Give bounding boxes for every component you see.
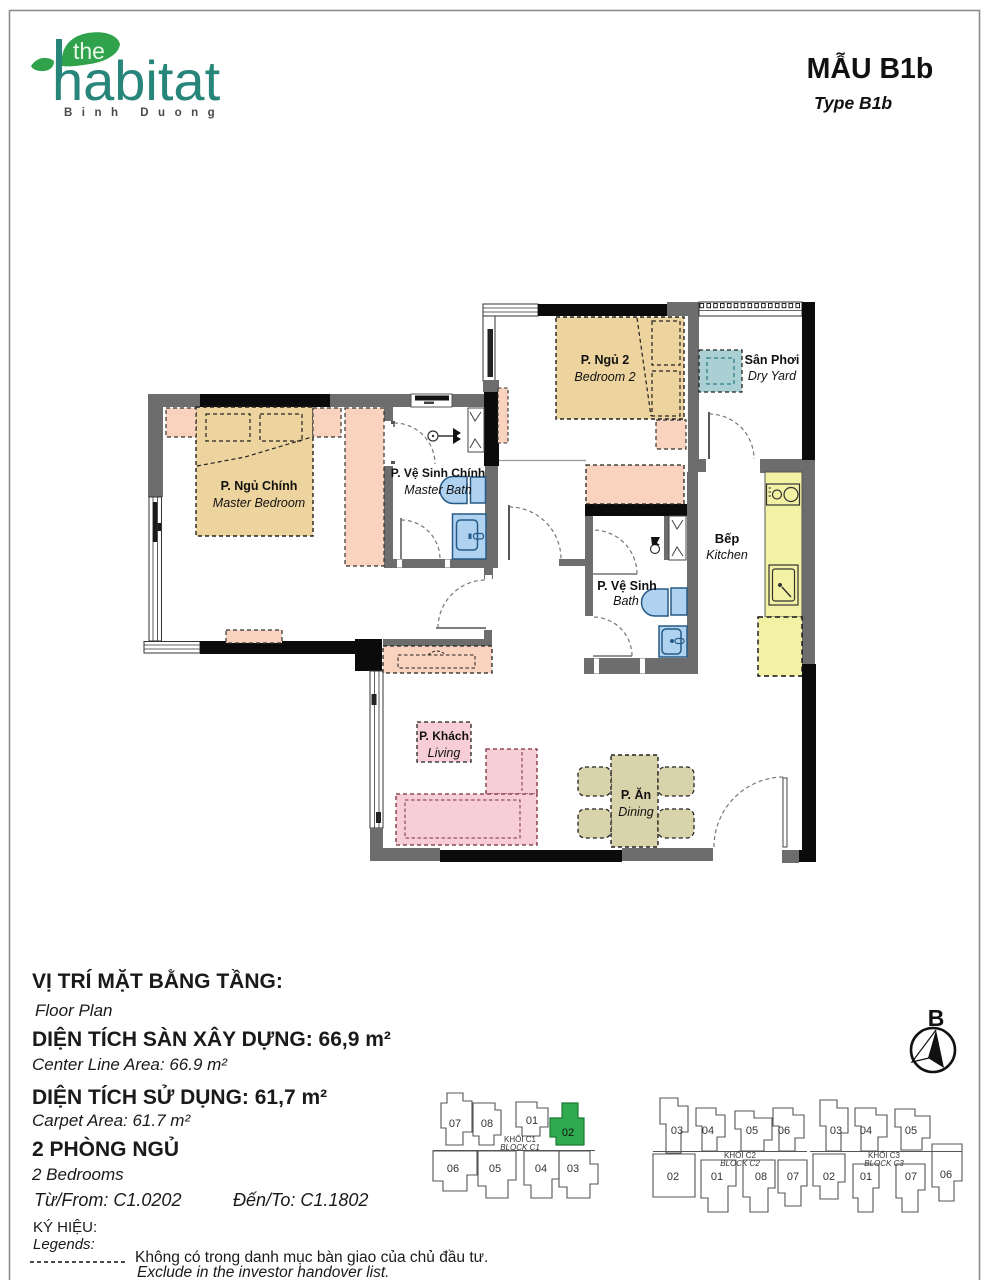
- svg-text:P. Ngủ 2: P. Ngủ 2: [581, 353, 629, 367]
- svg-text:Floor Plan: Floor Plan: [35, 1001, 112, 1020]
- svg-text:Carpet Area: 61.7 m²: Carpet Area: 61.7 m²: [32, 1111, 191, 1130]
- svg-text:06: 06: [778, 1125, 790, 1137]
- svg-text:Binh Duong: Binh Duong: [64, 107, 224, 119]
- svg-text:DIỆN TÍCH SỬ DỤNG: 61,7 m²: DIỆN TÍCH SỬ DỤNG: 61,7 m²: [32, 1085, 327, 1109]
- svg-text:02: 02: [823, 1171, 835, 1183]
- svg-text:P. Vệ Sinh Chính: P. Vệ Sinh Chính: [391, 466, 485, 480]
- svg-text:KÝ HIỆU:: KÝ HIỆU:: [33, 1219, 97, 1236]
- svg-text:2 PHÒNG NGỦ: 2 PHÒNG NGỦ: [32, 1137, 179, 1161]
- svg-text:05: 05: [746, 1125, 758, 1137]
- svg-text:habitat: habitat: [52, 49, 221, 112]
- svg-text:P. Vệ Sinh: P. Vệ Sinh: [597, 579, 657, 593]
- svg-text:Living: Living: [428, 746, 461, 760]
- svg-text:07: 07: [905, 1171, 917, 1183]
- svg-text:Exclude in the investor handov: Exclude in the investor handover list.: [137, 1264, 389, 1280]
- svg-text:03: 03: [671, 1125, 683, 1137]
- svg-text:02: 02: [667, 1171, 679, 1183]
- svg-text:08: 08: [755, 1171, 767, 1183]
- svg-text:B: B: [928, 1005, 945, 1031]
- svg-text:Master Bath: Master Bath: [404, 483, 471, 497]
- svg-text:05: 05: [489, 1163, 501, 1175]
- svg-text:Bath: Bath: [613, 594, 639, 608]
- svg-text:Sân Phơi: Sân Phơi: [745, 353, 800, 367]
- svg-text:MẪU B1b: MẪU B1b: [807, 53, 934, 85]
- svg-text:Dining: Dining: [618, 805, 653, 819]
- svg-text:P. Ngủ Chính: P. Ngủ Chính: [221, 479, 298, 493]
- svg-text:Legends:: Legends:: [33, 1236, 95, 1253]
- svg-text:04: 04: [535, 1163, 547, 1175]
- svg-text:Type B1b: Type B1b: [814, 93, 892, 113]
- svg-text:07: 07: [449, 1118, 461, 1130]
- svg-text:P. Khách: P. Khách: [419, 729, 469, 743]
- svg-text:05: 05: [905, 1125, 917, 1137]
- svg-text:Master Bedroom: Master Bedroom: [213, 496, 305, 510]
- svg-text:Center Line Area: 66.9 m²: Center Line Area: 66.9 m²: [32, 1055, 228, 1074]
- svg-text:Dry Yard: Dry Yard: [748, 369, 797, 383]
- svg-text:07: 07: [787, 1171, 799, 1183]
- svg-text:08: 08: [481, 1118, 493, 1130]
- svg-text:Đến/To: C1.1802: Đến/To: C1.1802: [233, 1190, 368, 1210]
- svg-text:01: 01: [860, 1171, 872, 1183]
- svg-text:06: 06: [940, 1169, 952, 1181]
- svg-text:04: 04: [860, 1125, 872, 1137]
- svg-text:04: 04: [702, 1125, 714, 1137]
- svg-text:01: 01: [711, 1171, 723, 1183]
- svg-text:Kitchen: Kitchen: [706, 548, 748, 562]
- svg-text:P. Ăn: P. Ăn: [621, 787, 651, 802]
- svg-text:02: 02: [562, 1127, 574, 1139]
- svg-text:VỊ TRÍ MẶT BẰNG TẦNG:: VỊ TRÍ MẶT BẰNG TẦNG:: [32, 969, 283, 993]
- svg-text:03: 03: [830, 1125, 842, 1137]
- svg-text:Bếp: Bếp: [715, 531, 740, 546]
- svg-text:Từ/From: C1.0202: Từ/From: C1.0202: [34, 1190, 181, 1210]
- svg-text:06: 06: [447, 1163, 459, 1175]
- svg-text:Bedroom 2: Bedroom 2: [574, 370, 635, 384]
- svg-text:01: 01: [526, 1115, 538, 1127]
- svg-text:03: 03: [567, 1163, 579, 1175]
- svg-text:2 Bedrooms: 2 Bedrooms: [31, 1165, 124, 1184]
- svg-text:DIỆN TÍCH SÀN XÂY DỰNG: 66,9: DIỆN TÍCH SÀN XÂY DỰNG: 66,9 m²: [32, 1027, 391, 1051]
